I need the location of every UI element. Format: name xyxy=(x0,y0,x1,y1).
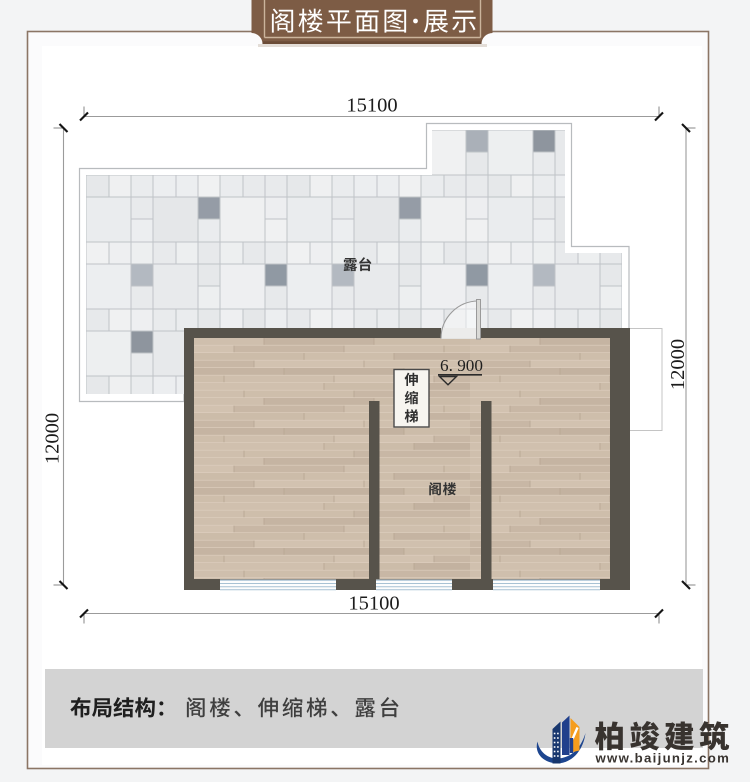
svg-text:6. 900: 6. 900 xyxy=(440,356,483,375)
svg-text:12000: 12000 xyxy=(42,413,64,464)
svg-text:15100: 15100 xyxy=(346,95,397,117)
svg-text:12000: 12000 xyxy=(667,339,689,390)
svg-text:15100: 15100 xyxy=(348,593,399,615)
svg-text:www.baijunjz.com: www.baijunjz.com xyxy=(595,751,731,766)
